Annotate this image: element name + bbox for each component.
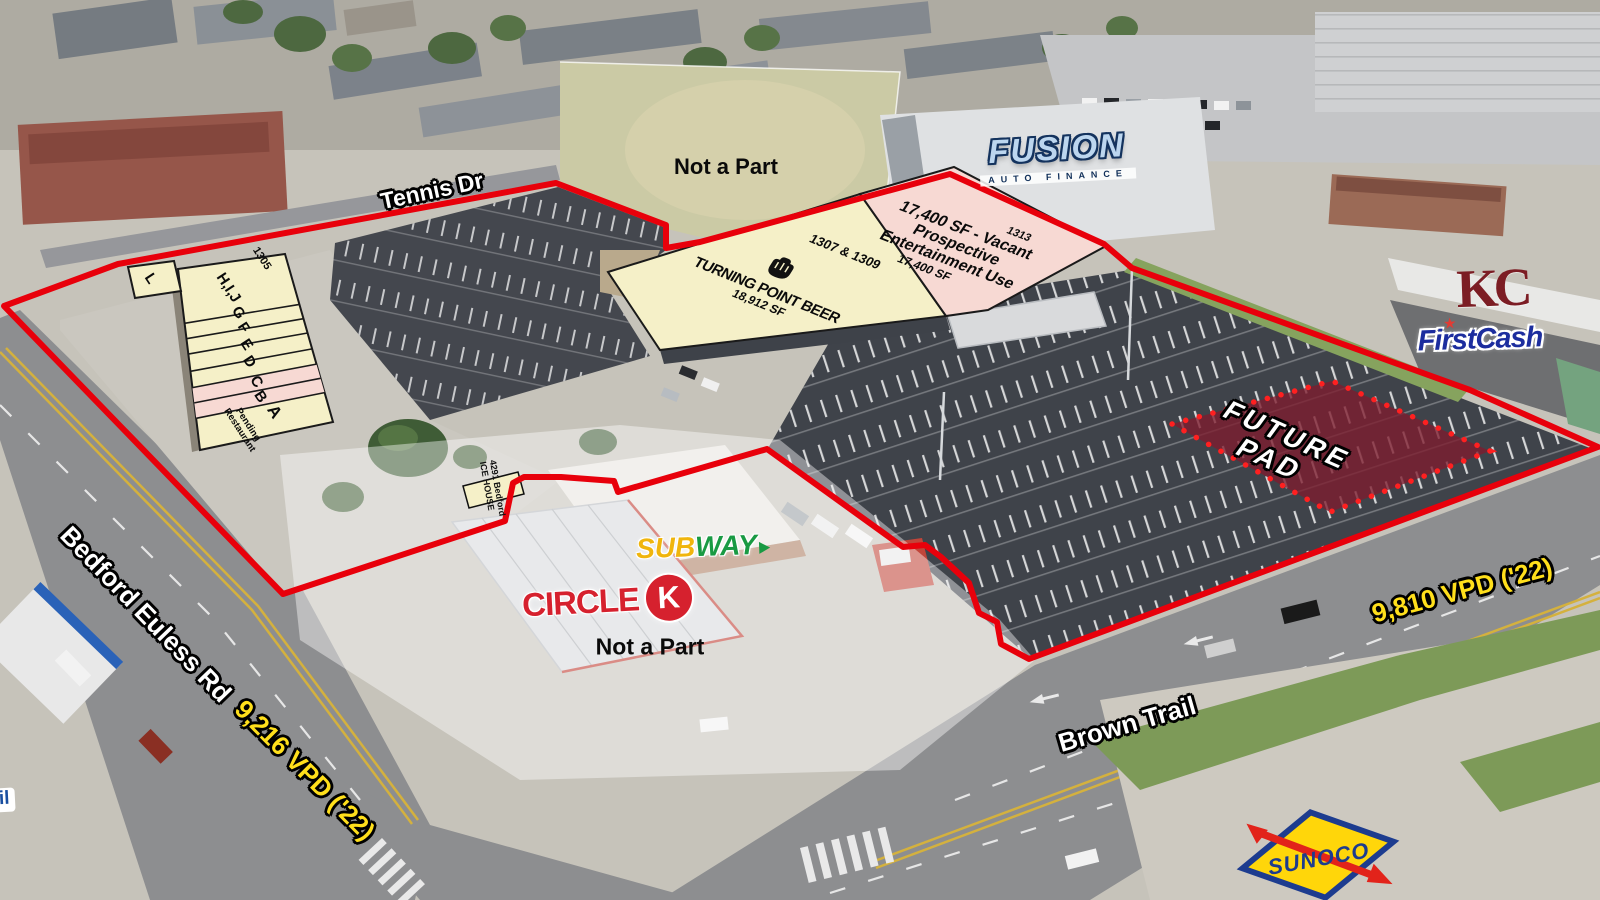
- kc-logo: KC: [1456, 258, 1529, 319]
- firstcash-name: FirstCash: [1417, 321, 1543, 357]
- not-a-part-south: Not a Part: [596, 635, 705, 660]
- firstcash-star-icon: ★: [1443, 316, 1457, 333]
- circle-k-icon: K: [645, 574, 693, 622]
- fusion-name: FUSION: [978, 127, 1135, 171]
- mobil-sign-fragment: il: [0, 787, 15, 812]
- aerial-backdrop: [0, 0, 1600, 900]
- fusion-logo: FUSION AUTO FINANCE: [978, 127, 1136, 188]
- subway-arrow-icon: [759, 542, 770, 554]
- aerial-site-plan: Tennis Dr Not a Part Bedford Euless Rd 9…: [0, 0, 1600, 900]
- circle-k-word: CIRCLE: [521, 582, 640, 624]
- not-a-part-north: Not a Part: [674, 155, 778, 179]
- subway-logo: SUBWAY: [636, 530, 771, 565]
- firstcash-logo: ★ FirstCash: [1417, 322, 1543, 358]
- subway-way: WAY: [695, 529, 758, 562]
- subway-sub: SUB: [636, 531, 696, 564]
- circle-k-logo: CIRCLE K: [521, 574, 693, 629]
